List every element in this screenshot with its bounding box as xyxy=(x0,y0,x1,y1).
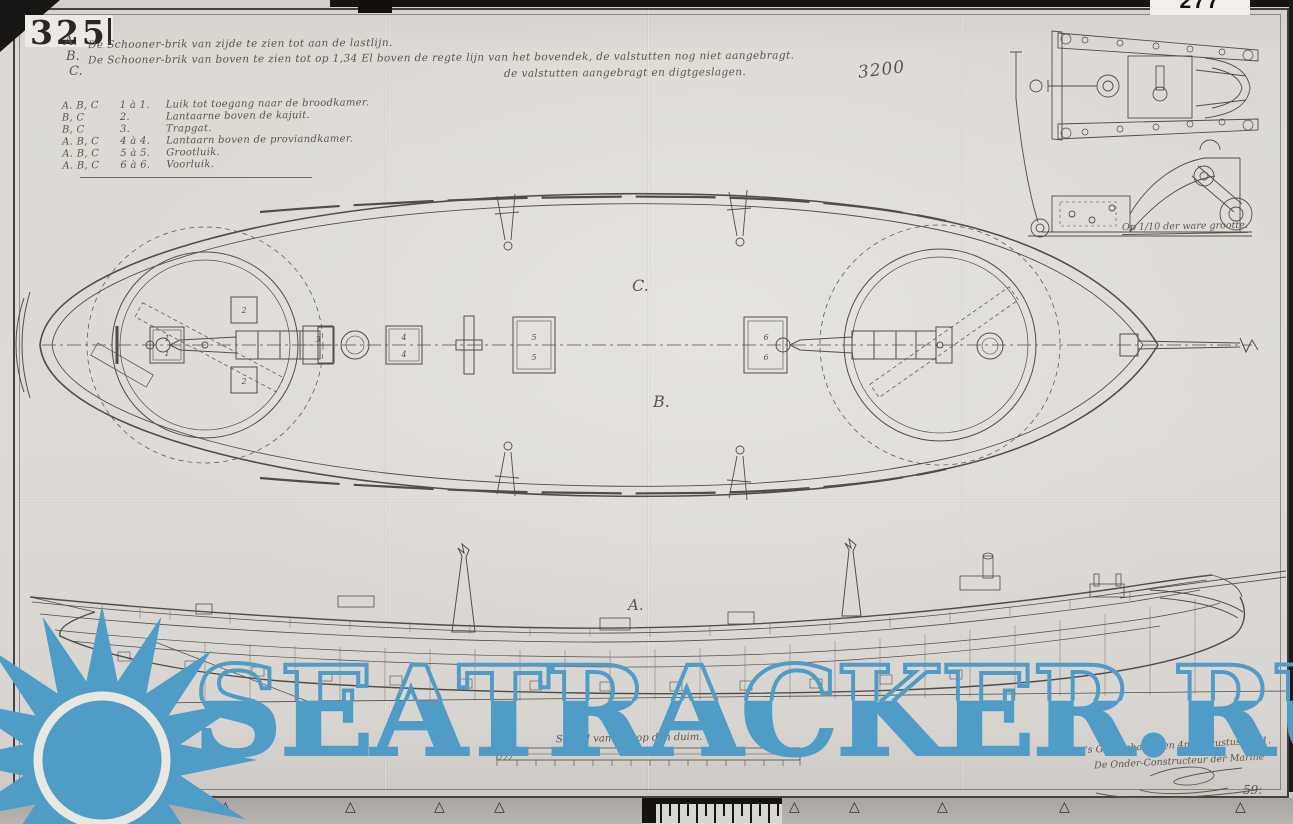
ruler-end-cap xyxy=(642,804,656,823)
ruler-short-ticks xyxy=(642,804,782,816)
plan-view: 1 1 2 2 3 4 4 5 5 6 6 xyxy=(16,190,1258,500)
ship-drawing: 1 1 2 2 3 4 4 5 5 6 6 xyxy=(0,0,1293,824)
registration-triangle: △ xyxy=(1235,799,1246,815)
hatch-number: 6 xyxy=(763,333,768,342)
elevation-view xyxy=(30,539,1286,710)
registration-triangle: △ xyxy=(220,799,231,815)
registration-triangle: △ xyxy=(345,799,356,815)
detail-caption: Op 1/10 der ware grootte. xyxy=(1122,220,1248,235)
sheet-number: 59. xyxy=(1243,783,1262,797)
hatch-number: 4 xyxy=(400,350,406,359)
detail-view-gun-slide xyxy=(1010,31,1258,237)
hatch-number: 1 xyxy=(164,334,169,343)
registration-triangle: △ xyxy=(849,799,860,815)
plan-lower-view-label: B. xyxy=(653,392,670,411)
bow-pivot-gun xyxy=(776,287,1018,398)
scale-bar xyxy=(497,748,800,766)
registration-triangle: △ xyxy=(494,799,505,815)
hatch-number: 1 xyxy=(164,349,169,358)
hatch-number: 2 xyxy=(240,377,246,386)
hatch-number: 2 xyxy=(240,306,246,315)
hatch-number: 5 xyxy=(531,333,536,342)
hatch-number: 3 xyxy=(315,335,320,344)
registration-triangle: △ xyxy=(434,799,445,815)
hatch-number: 6 xyxy=(763,353,768,362)
hatch-number: 4 xyxy=(400,333,406,342)
registration-triangle: △ xyxy=(44,799,55,815)
registration-triangle: △ xyxy=(1059,799,1070,815)
registration-triangle: △ xyxy=(789,799,800,815)
hull-bottom-fittings xyxy=(118,652,962,691)
deck-structures xyxy=(196,553,1124,630)
registration-triangle: △ xyxy=(937,799,948,815)
hatch-number: 5 xyxy=(531,353,536,362)
elevation-view-label: A. xyxy=(628,596,644,614)
scanned-ship-plan: 277 325 A. B. C. De Schooner-brik van zi… xyxy=(0,0,1293,824)
signature-flourish xyxy=(1096,767,1262,798)
scan-ruler xyxy=(642,798,782,824)
plan-upper-view-label: C. xyxy=(632,276,649,295)
